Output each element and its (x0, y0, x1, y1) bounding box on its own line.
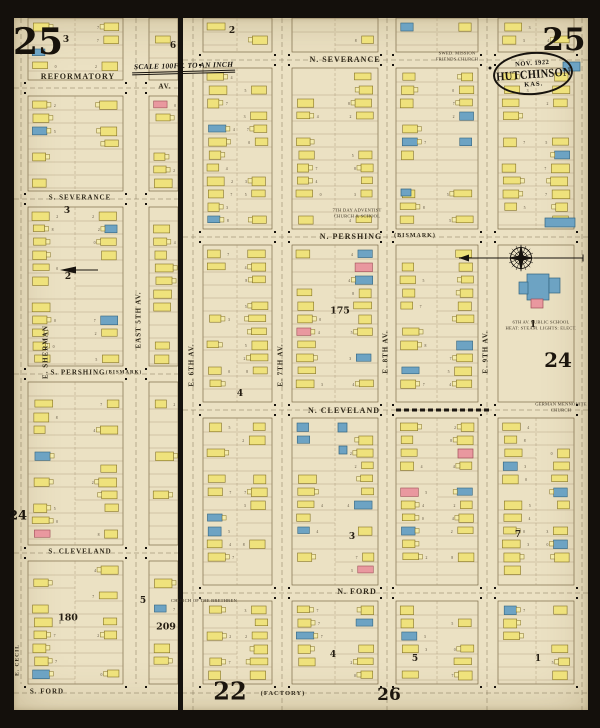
svg-text:4: 4 (347, 504, 349, 508)
city-block: 28 (145, 378, 183, 549)
street-label: N. FORD (337, 588, 376, 596)
svg-text:0: 0 (248, 141, 250, 145)
svg-text:7: 7 (247, 128, 249, 132)
svg-text:5: 5 (451, 622, 453, 626)
svg-text:2: 2 (95, 65, 97, 69)
svg-text:0: 0 (228, 370, 230, 374)
svg-text:5: 5 (95, 358, 97, 362)
svg-text:4: 4 (321, 504, 323, 508)
city-block: 75 (494, 597, 578, 688)
svg-text:5: 5 (245, 305, 247, 309)
svg-text:3: 3 (425, 648, 427, 652)
svg-text:7: 7 (227, 253, 229, 257)
svg-text:2: 2 (547, 102, 549, 106)
svg-text:2: 2 (426, 556, 428, 560)
railway-tick (428, 409, 433, 412)
svg-text:5: 5 (244, 89, 246, 93)
railway-tick (460, 409, 465, 412)
railway-tick (452, 409, 457, 412)
svg-text:5: 5 (352, 154, 354, 158)
svg-text:2: 2 (350, 661, 352, 665)
svg-text:5: 5 (552, 661, 554, 665)
svg-text:5: 5 (545, 141, 547, 145)
svg-text:4: 4 (174, 241, 176, 245)
svg-text:7: 7 (97, 26, 99, 30)
street-label: S. PERSHING (51, 370, 106, 377)
svg-text:4: 4 (348, 279, 350, 283)
svg-text:2: 2 (54, 104, 56, 108)
city-block: 47442738537035 (199, 64, 276, 233)
svg-text:4: 4 (226, 167, 228, 171)
svg-text:4: 4 (422, 504, 424, 508)
svg-text:7: 7 (544, 167, 546, 171)
svg-text:7: 7 (316, 609, 318, 613)
svg-text:0: 0 (94, 241, 96, 245)
railway-tick (468, 409, 473, 412)
svg-text:8: 8 (227, 219, 229, 223)
city-block: 28000220725 (24, 203, 127, 370)
landmark-label-line: SWED. MISSION (436, 50, 478, 56)
railway-tick (420, 409, 425, 412)
svg-text:4: 4 (94, 569, 96, 573)
svg-text:2: 2 (231, 180, 233, 184)
svg-text:5: 5 (529, 504, 531, 508)
svg-text:7: 7 (318, 622, 320, 626)
svg-text:4: 4 (316, 530, 318, 534)
block-number: 2 (229, 26, 235, 36)
street-label: S. SEVERANCE (49, 195, 112, 202)
svg-text:3: 3 (529, 26, 531, 30)
svg-text:8: 8 (524, 439, 526, 443)
landmark-label: GERMAN MENNONITECHURCH (535, 401, 587, 412)
svg-text:7: 7 (321, 635, 323, 639)
block-number: 3 (64, 206, 70, 216)
sheet-number-top-left: 25 (13, 21, 63, 63)
svg-text:0: 0 (551, 452, 553, 456)
svg-text:2: 2 (242, 439, 244, 443)
railway-tick (484, 409, 489, 412)
svg-text:2: 2 (98, 228, 100, 232)
landmark-label: 7TH DAY ADVENTISTCHURCH & SCHOOL (333, 207, 382, 218)
city-block: 7807255 (392, 64, 482, 233)
city-block: 77720 (288, 597, 382, 688)
block-number: 6 (170, 41, 176, 51)
svg-text:2: 2 (454, 426, 456, 430)
svg-text:8: 8 (348, 102, 350, 106)
svg-text:3: 3 (524, 465, 526, 469)
svg-text:4: 4 (453, 465, 455, 469)
svg-text:4: 4 (318, 331, 320, 335)
street-label: AV. (158, 84, 171, 91)
svg-text:7: 7 (424, 141, 426, 145)
svg-text:8: 8 (352, 292, 354, 296)
stone-building (401, 189, 411, 196)
svg-text:2: 2 (97, 634, 99, 638)
adjacent-sheet-number: 24 (544, 348, 572, 372)
svg-text:7: 7 (450, 357, 452, 361)
city-block: 02 (145, 92, 182, 195)
svg-text:0: 0 (422, 517, 424, 521)
railway-tick (412, 409, 417, 412)
landmark-label-line: FRIENDS CHURCH (436, 56, 478, 62)
railway-tick (444, 409, 449, 412)
svg-text:2: 2 (350, 452, 352, 456)
city-block: 8507428 (24, 378, 127, 549)
svg-text:2: 2 (92, 481, 94, 485)
svg-text:3: 3 (226, 206, 228, 210)
svg-text:0: 0 (523, 530, 525, 534)
city-block: 2732 (199, 597, 276, 688)
svg-text:3: 3 (527, 543, 529, 547)
svg-text:7: 7 (229, 491, 231, 495)
map-canvas: 0772252800022072585074280774720024342827… (14, 18, 588, 710)
city-block: 4422473 (288, 414, 382, 589)
svg-text:4: 4 (229, 543, 231, 547)
svg-text:3: 3 (354, 193, 356, 197)
svg-text:7: 7 (545, 193, 547, 197)
svg-text:5: 5 (422, 279, 424, 283)
svg-text:7: 7 (523, 141, 525, 145)
city-block: 454022842428 (392, 414, 482, 589)
svg-text:3: 3 (244, 115, 246, 119)
street-label: E. 8TH AV. (383, 330, 390, 373)
block-number: 175 (330, 306, 350, 317)
street-label: EAST 5TH AV. (136, 292, 143, 349)
city-block: 33507 (392, 597, 482, 688)
street-label: E. SHERMAN (43, 325, 50, 379)
public-school-main (527, 274, 549, 300)
stone-building (338, 423, 347, 432)
svg-text:5: 5 (449, 219, 451, 223)
adjacent-sheet-number: 22 (213, 677, 246, 706)
svg-text:4: 4 (449, 383, 451, 387)
svg-text:7: 7 (173, 608, 175, 612)
svg-text:0: 0 (319, 318, 321, 322)
city-block: 043448534 (288, 241, 382, 406)
svg-text:7: 7 (226, 102, 228, 106)
landmark-label: CHURCH OF THE BRETHREN (171, 598, 237, 604)
svg-text:4: 4 (529, 517, 531, 521)
svg-text:7: 7 (54, 634, 56, 638)
svg-text:0: 0 (320, 193, 322, 197)
landmark-label: SWED. MISSIONFRIENDS CHURCH (436, 50, 478, 61)
svg-text:8: 8 (52, 228, 54, 232)
landmark-label: 6TH AV. PUBLIC SCHOOLHEAT: STEAM. LIGHTS… (505, 319, 576, 330)
sanborn-map-sheet: 0772252800022072585074280774720024342827… (0, 0, 600, 728)
svg-text:7: 7 (97, 39, 99, 43)
block-number: 5 (412, 654, 418, 664)
svg-text:8: 8 (355, 39, 357, 43)
street-label: E. 9TH AV. (483, 330, 490, 373)
compass-rose-icon (459, 244, 583, 272)
block-number: 3 (349, 532, 355, 542)
svg-text:5: 5 (54, 130, 56, 134)
svg-text:2: 2 (451, 530, 453, 534)
block-number: 209 (156, 622, 176, 633)
scale-banner: SCALE 100FT. TO AN INCH (132, 60, 236, 76)
public-school-annex (531, 299, 543, 308)
street-label: E. 6TH AV. (189, 343, 196, 386)
svg-text:0: 0 (454, 648, 456, 652)
svg-text:8: 8 (98, 533, 100, 537)
svg-text:2: 2 (173, 403, 175, 407)
svg-text:4: 4 (349, 219, 351, 223)
landmark-label-line: GERMAN MENNONITE (535, 401, 587, 407)
svg-text:3: 3 (546, 530, 548, 534)
svg-text:4: 4 (527, 426, 529, 430)
block-number: 4 (330, 650, 336, 660)
svg-text:4: 4 (421, 465, 423, 469)
railway-tick (436, 409, 441, 412)
svg-text:8: 8 (425, 344, 427, 348)
block-number: 1 (535, 654, 541, 664)
stone-building (545, 218, 575, 227)
svg-text:7: 7 (423, 383, 425, 387)
svg-text:0: 0 (452, 89, 454, 93)
stone-building (339, 446, 347, 454)
svg-text:4: 4 (233, 128, 235, 132)
public-school-west-wing (519, 282, 528, 294)
street-label: (BISMARK) (394, 233, 436, 239)
svg-text:0: 0 (53, 345, 55, 349)
street-label: S. CLEVELAND (48, 549, 111, 556)
street-label: REFORMATORY (41, 73, 115, 81)
svg-text:2: 2 (355, 465, 357, 469)
svg-text:7: 7 (356, 556, 358, 560)
svg-text:4: 4 (352, 383, 354, 387)
svg-text:5: 5 (54, 507, 56, 511)
brick-building (458, 449, 473, 458)
svg-text:7: 7 (316, 167, 318, 171)
street-label: (FACTORY) (261, 691, 306, 698)
svg-text:4: 4 (351, 253, 353, 257)
landmark-label-line: CHURCH (535, 407, 587, 413)
public-school-east-wing (549, 278, 560, 293)
svg-text:4: 4 (231, 76, 233, 80)
block-number: 180 (58, 613, 78, 624)
svg-text:2: 2 (56, 215, 58, 219)
city-block: 730485528 (199, 241, 276, 406)
svg-text:0: 0 (55, 65, 57, 69)
city-block: 575472738 (199, 414, 276, 589)
street-label: N. PERSHING (320, 233, 383, 241)
svg-text:3: 3 (245, 180, 247, 184)
landmark-label-line: 6TH AV. PUBLIC SCHOOL (505, 319, 576, 325)
svg-text:0: 0 (546, 543, 548, 547)
svg-text:3: 3 (321, 383, 323, 387)
svg-text:7: 7 (92, 595, 94, 599)
svg-text:7: 7 (523, 609, 525, 613)
city-block: 25 (24, 92, 127, 195)
svg-text:8: 8 (450, 439, 452, 443)
svg-text:4: 4 (315, 180, 317, 184)
svg-text:7: 7 (451, 674, 453, 678)
svg-text:7: 7 (94, 319, 96, 323)
svg-text:0: 0 (354, 674, 356, 678)
svg-text:3: 3 (244, 504, 246, 508)
svg-text:2: 2 (95, 332, 97, 336)
block-number: 7 (515, 530, 521, 540)
block-number: 4 (237, 389, 243, 399)
svg-text:7: 7 (55, 660, 57, 664)
svg-text:0: 0 (56, 267, 58, 271)
svg-text:4: 4 (452, 517, 454, 521)
svg-text:8: 8 (245, 279, 247, 283)
landmark-label-line: CHURCH & SCHOOL (333, 213, 382, 219)
svg-text:5: 5 (447, 193, 449, 197)
svg-text:5: 5 (425, 491, 427, 495)
city-block: 2 (199, 18, 276, 56)
svg-text:5: 5 (448, 370, 450, 374)
city-block: 434 (145, 203, 182, 370)
svg-text:4: 4 (93, 429, 95, 433)
svg-text:8: 8 (423, 206, 425, 210)
svg-text:2: 2 (92, 215, 94, 219)
svg-text:5: 5 (228, 426, 230, 430)
svg-text:4: 4 (245, 266, 247, 270)
street-label: S. FORD (30, 689, 64, 696)
landmark-label-line: HEAT: STEAM. LIGHTS: ELECT. (505, 325, 576, 331)
section-divider (178, 18, 183, 710)
railway-tick (404, 409, 409, 412)
svg-text:0: 0 (101, 673, 103, 677)
svg-text:7: 7 (420, 305, 422, 309)
map-paper: 0772252800022072585074280774720024342827… (14, 18, 588, 710)
svg-text:2: 2 (453, 115, 455, 119)
landmark-label-line: 7TH DAY ADVENTIST (333, 207, 382, 213)
city-block: 48305403030 (494, 414, 578, 589)
svg-text:7: 7 (244, 491, 246, 495)
svg-text:3: 3 (424, 635, 426, 639)
svg-text:7: 7 (229, 661, 231, 665)
svg-text:0: 0 (174, 104, 176, 108)
svg-text:2: 2 (453, 504, 455, 508)
railway-tick (476, 409, 481, 412)
svg-text:8: 8 (354, 167, 356, 171)
landmark-label-line: CHURCH OF THE BRETHREN (171, 598, 237, 604)
svg-text:2: 2 (349, 115, 351, 119)
svg-text:2: 2 (173, 169, 175, 173)
adjacent-sheet-number: 24 (9, 509, 27, 524)
svg-text:8: 8 (451, 556, 453, 560)
svg-text:7: 7 (453, 102, 455, 106)
street-label: N. CLEVELAND (308, 407, 380, 415)
svg-text:7: 7 (232, 556, 234, 560)
svg-text:3: 3 (244, 609, 246, 613)
svg-text:3: 3 (349, 357, 351, 361)
svg-text:5: 5 (524, 206, 526, 210)
street-label: (BISMARK) (106, 371, 142, 376)
block-number: 5 (140, 596, 146, 606)
street-label: E. 7TH AV. (278, 343, 285, 386)
svg-text:2: 2 (243, 357, 245, 361)
svg-text:0: 0 (525, 478, 527, 482)
svg-text:8: 8 (243, 543, 245, 547)
svg-text:5: 5 (245, 344, 247, 348)
street-label: N. SEVERANCE (309, 56, 380, 64)
svg-text:3: 3 (523, 39, 525, 43)
city-block: 5787754 (392, 241, 482, 406)
svg-text:4: 4 (317, 115, 319, 119)
adjacent-sheet-number: 26 (377, 685, 401, 705)
svg-text:8: 8 (246, 370, 248, 374)
block-number: 2 (65, 272, 71, 282)
svg-text:5: 5 (245, 193, 247, 197)
block-number: 3 (63, 35, 69, 45)
svg-text:2: 2 (245, 635, 247, 639)
street-label: E. CECIL (15, 644, 21, 676)
railway-tick (396, 409, 401, 412)
svg-text:5: 5 (351, 331, 353, 335)
svg-text:5: 5 (228, 530, 230, 534)
svg-text:3: 3 (228, 318, 230, 322)
svg-text:0: 0 (56, 520, 58, 524)
svg-text:2: 2 (229, 635, 231, 639)
svg-text:3: 3 (351, 569, 353, 573)
svg-text:0: 0 (54, 319, 56, 323)
svg-text:8: 8 (56, 416, 58, 420)
city-block: 8 (288, 18, 382, 56)
svg-text:7: 7 (100, 403, 102, 407)
svg-text:7: 7 (230, 193, 232, 197)
stamp-city: HUTCHINSON (495, 64, 571, 84)
